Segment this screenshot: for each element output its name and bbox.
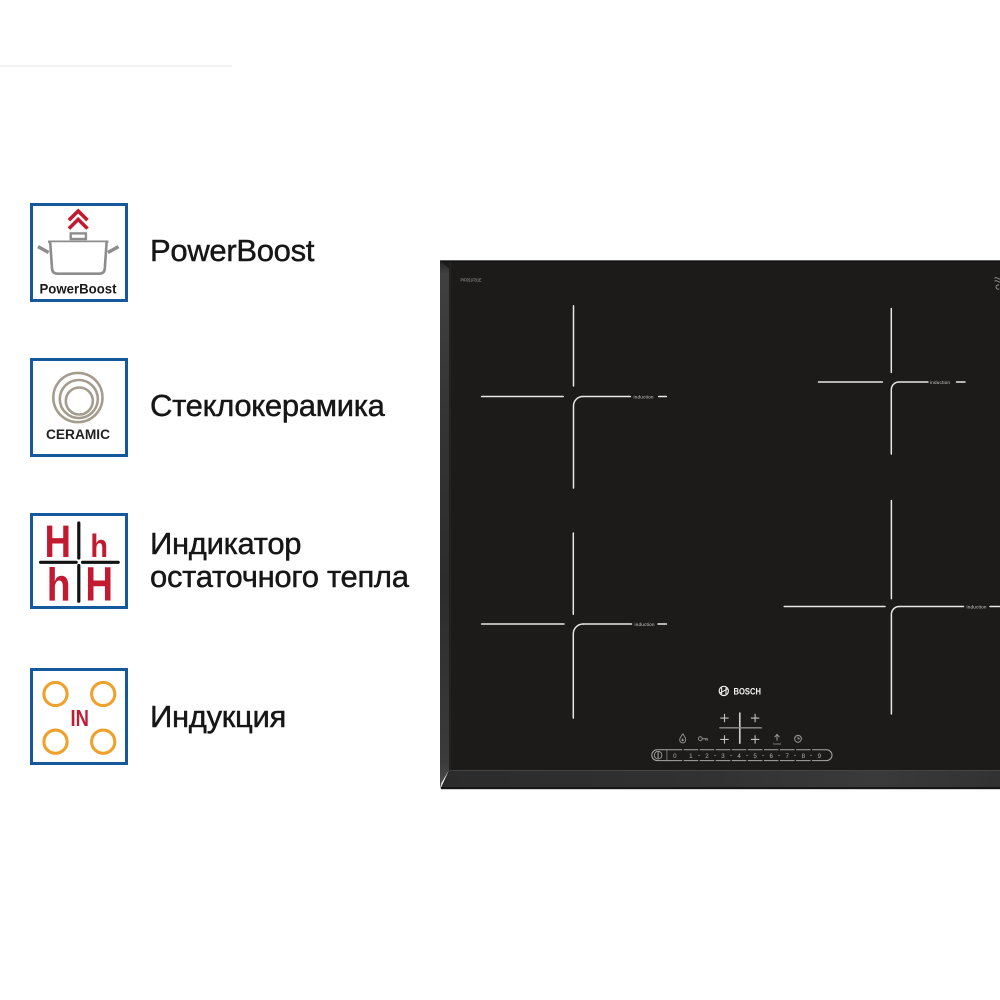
svg-text:2: 2 <box>705 753 709 760</box>
svg-text:h: h <box>47 560 71 606</box>
svg-text:H: H <box>85 559 113 606</box>
svg-text:induction: induction <box>967 604 987 609</box>
svg-text:1: 1 <box>689 753 693 760</box>
svg-text:IN: IN <box>71 706 89 731</box>
svg-text:induction: induction <box>930 380 950 385</box>
svg-text:4: 4 <box>737 753 741 760</box>
svg-text:PIF651FB1E: PIF651FB1E <box>461 278 482 283</box>
svg-text:9: 9 <box>818 753 822 760</box>
svg-text:6: 6 <box>769 753 773 760</box>
svg-text:boost: boost <box>773 742 781 746</box>
svg-text:7: 7 <box>785 753 789 760</box>
svg-text:PowerBoost: PowerBoost <box>40 281 117 297</box>
svg-text:5: 5 <box>753 753 757 760</box>
svg-text:0: 0 <box>673 753 677 760</box>
svg-text:induction: induction <box>634 394 654 399</box>
svg-text:3: 3 <box>721 753 725 760</box>
svg-text:CERAMIC: CERAMIC <box>46 427 110 442</box>
svg-text:induction: induction <box>635 622 655 627</box>
svg-text:BOSCH: BOSCH <box>734 685 762 696</box>
svg-text:8: 8 <box>802 753 806 760</box>
